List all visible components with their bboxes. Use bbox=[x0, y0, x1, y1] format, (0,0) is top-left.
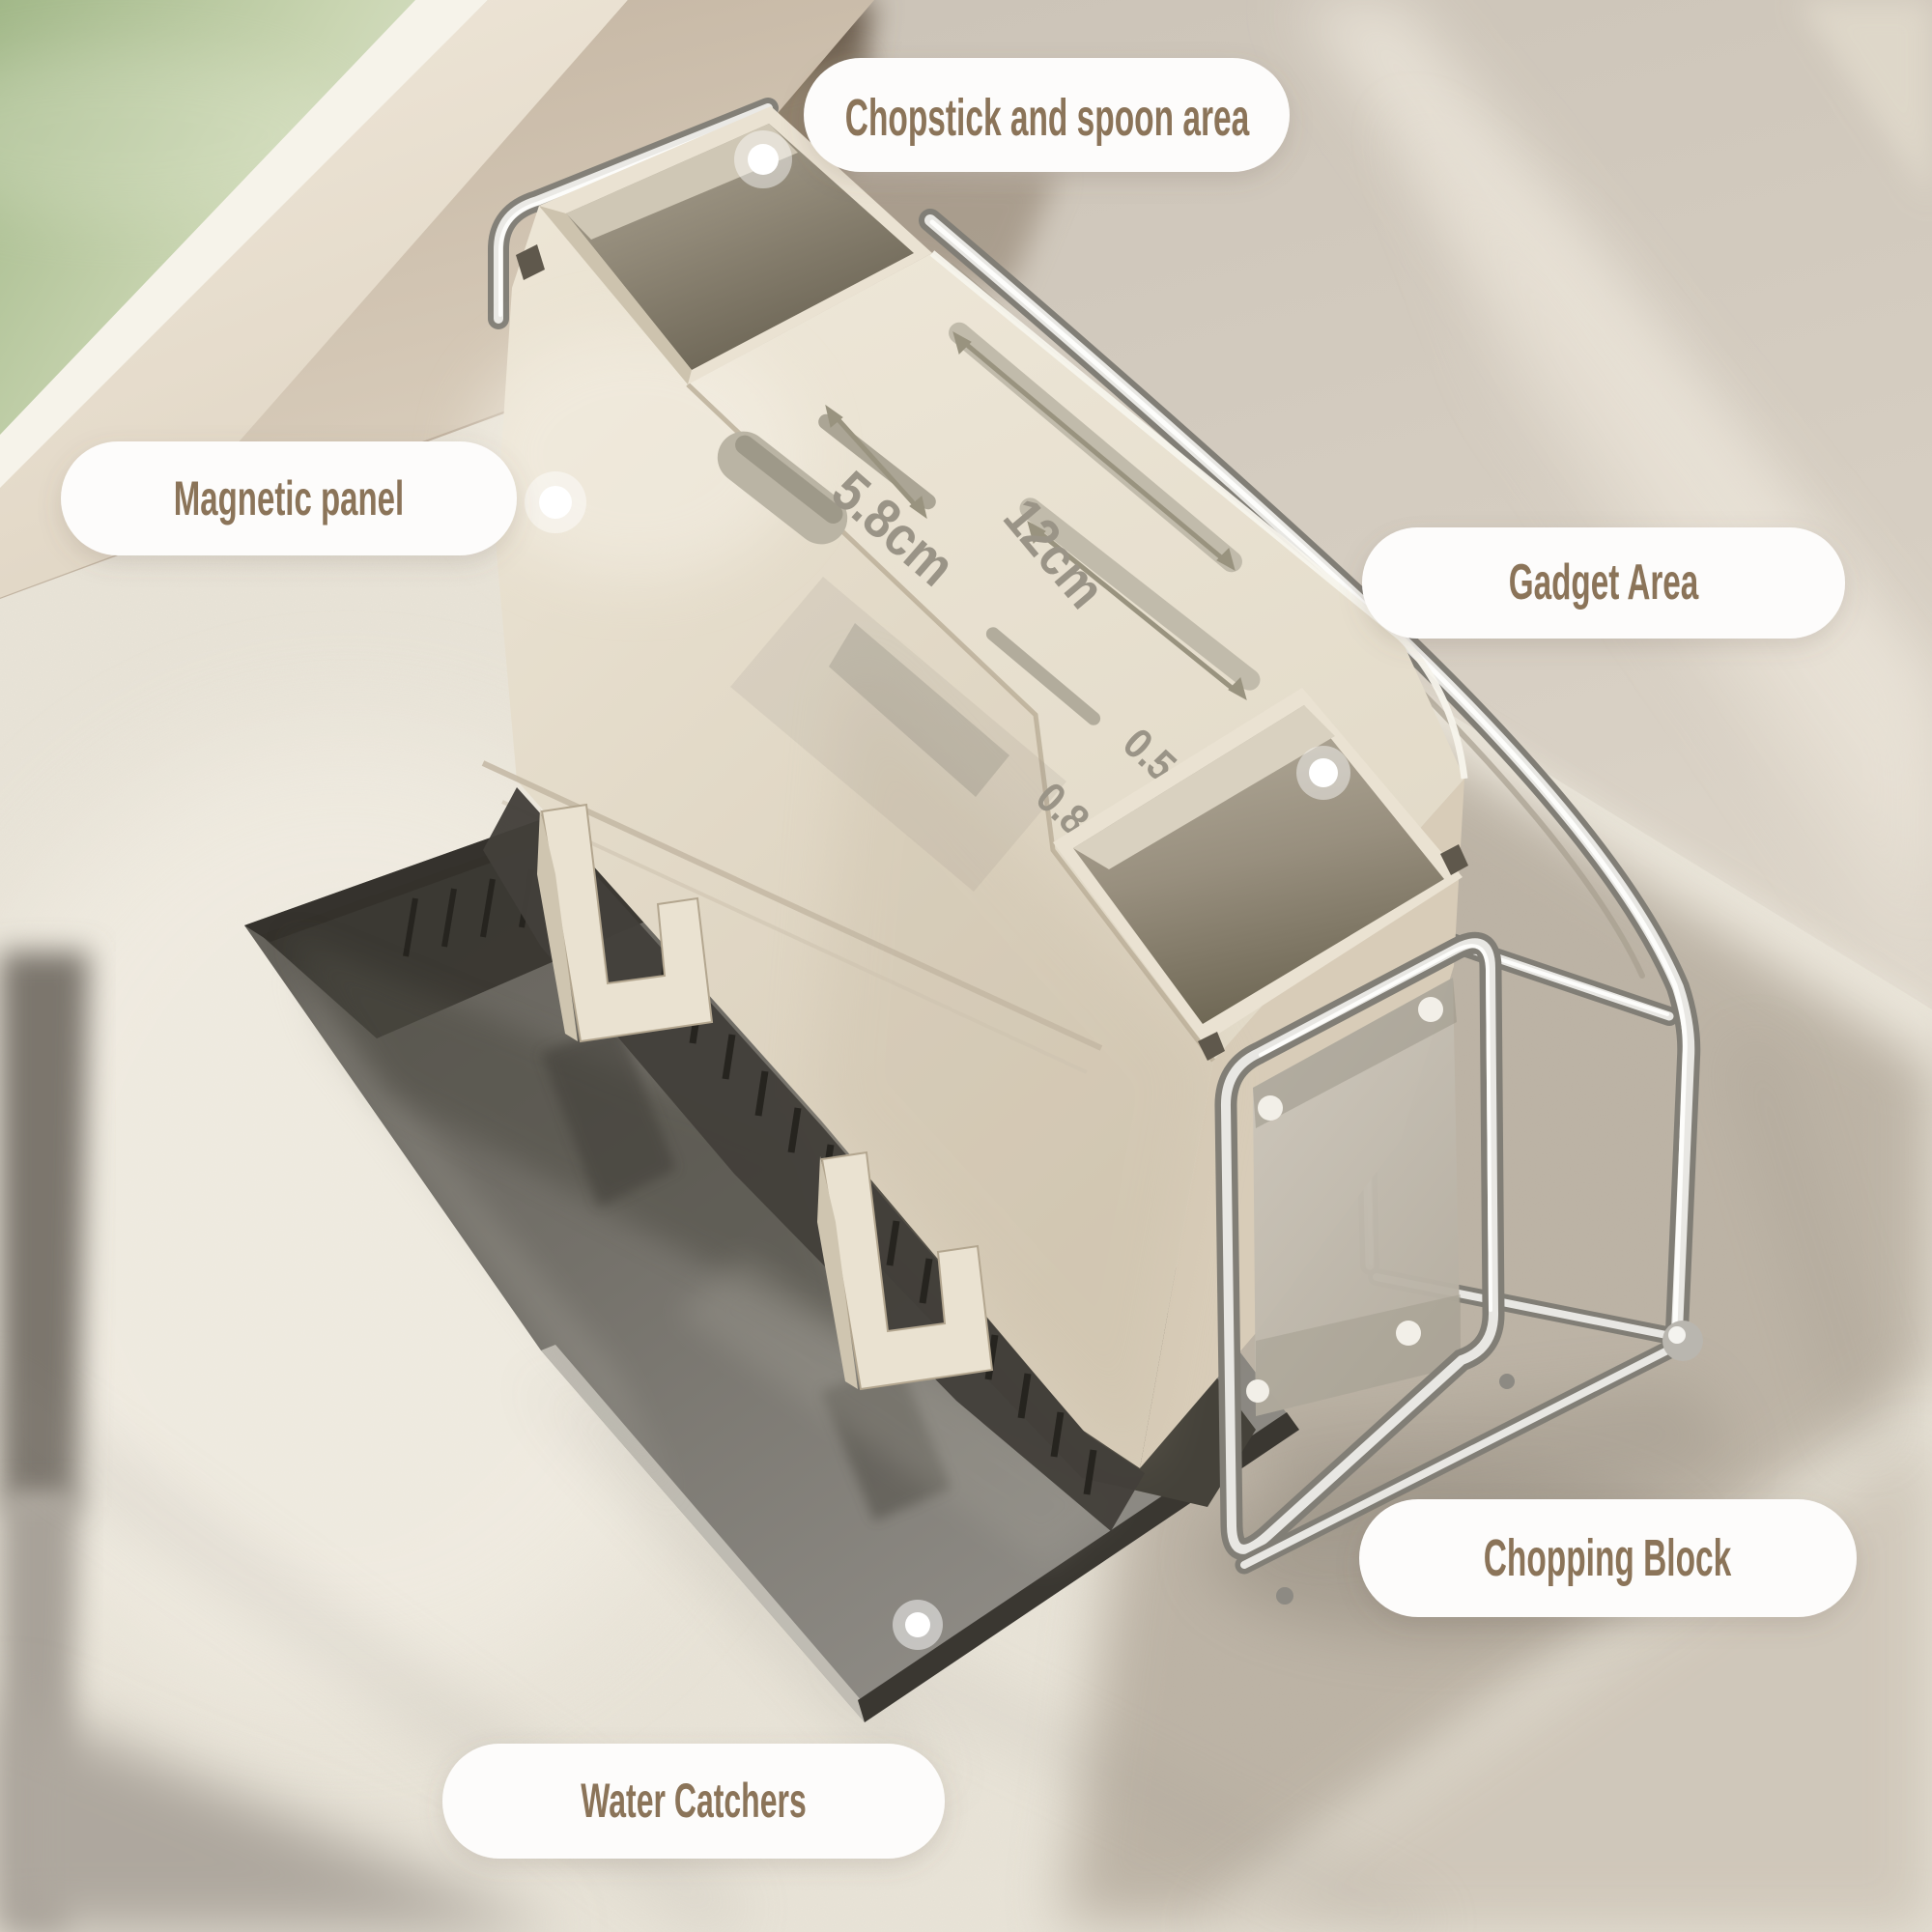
svg-text:Water Catchers: Water Catchers bbox=[581, 1774, 807, 1828]
svg-text:Magnetic panel: Magnetic panel bbox=[174, 471, 404, 525]
svg-text:Chopstick and spoon area: Chopstick and spoon area bbox=[845, 88, 1250, 147]
svg-text:Gadget Area: Gadget Area bbox=[1509, 554, 1699, 611]
svg-text:Chopping Block: Chopping Block bbox=[1484, 1528, 1732, 1587]
